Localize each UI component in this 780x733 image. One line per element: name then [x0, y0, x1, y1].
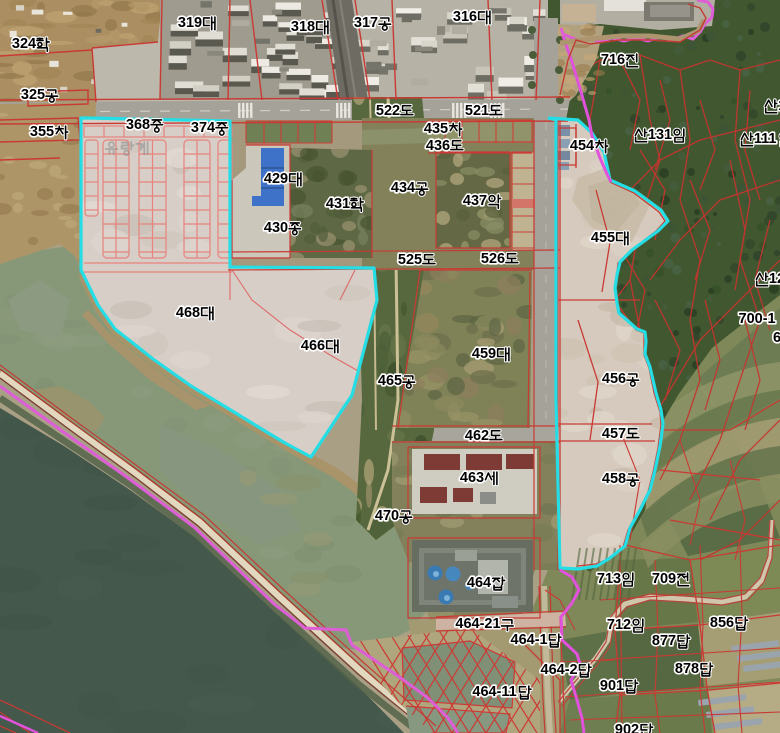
- svg-text:465: 465: [378, 373, 402, 389]
- svg-text:464-11: 464-11: [472, 684, 516, 700]
- svg-text:526: 526: [481, 251, 505, 267]
- svg-text:877: 877: [652, 633, 676, 649]
- svg-text:856: 856: [710, 615, 734, 631]
- svg-text:716: 716: [601, 52, 625, 68]
- svg-text:454: 454: [570, 138, 594, 154]
- svg-text:463: 463: [460, 470, 484, 486]
- svg-text:111: 111: [754, 131, 777, 147]
- svg-text:464-2: 464-2: [541, 662, 578, 678]
- svg-text:464: 464: [467, 575, 491, 591]
- svg-text:462: 462: [465, 428, 489, 444]
- svg-text:456: 456: [602, 371, 626, 387]
- svg-text:429: 429: [264, 171, 288, 187]
- svg-text:878: 878: [675, 661, 699, 677]
- svg-text:522: 522: [376, 103, 400, 119]
- svg-text:324: 324: [12, 36, 36, 52]
- svg-text:6: 6: [773, 330, 780, 346]
- svg-text:521: 521: [465, 103, 489, 119]
- svg-text:713: 713: [597, 571, 621, 587]
- svg-text:434: 434: [391, 180, 415, 196]
- svg-text:355: 355: [30, 124, 54, 140]
- svg-text:317: 317: [354, 15, 378, 31]
- svg-text:374: 374: [191, 120, 215, 136]
- svg-text:468: 468: [176, 305, 200, 321]
- svg-text:319: 319: [178, 15, 202, 31]
- svg-text:466: 466: [301, 338, 325, 354]
- svg-text:131: 131: [648, 127, 672, 143]
- svg-text:902: 902: [615, 722, 639, 733]
- svg-text:712: 712: [607, 617, 631, 633]
- svg-text:318: 318: [291, 19, 315, 35]
- svg-text:455: 455: [591, 230, 615, 246]
- svg-text:709: 709: [652, 571, 676, 587]
- svg-text:431: 431: [326, 196, 350, 212]
- svg-text:430: 430: [264, 220, 288, 236]
- svg-text:458: 458: [602, 471, 626, 487]
- svg-text:316: 316: [453, 9, 477, 25]
- svg-text:525: 525: [398, 252, 422, 268]
- svg-text:457: 457: [602, 426, 626, 442]
- svg-text:464-1: 464-1: [511, 632, 548, 648]
- svg-text:437: 437: [463, 193, 487, 209]
- svg-text:325: 325: [21, 87, 45, 103]
- svg-text:470: 470: [375, 508, 399, 524]
- svg-text:901: 901: [600, 678, 624, 694]
- svg-text:368: 368: [126, 117, 150, 133]
- svg-text:464-21: 464-21: [455, 616, 500, 632]
- svg-text:435: 435: [424, 121, 448, 137]
- svg-text:436: 436: [426, 138, 450, 154]
- svg-text:700-1: 700-1: [739, 311, 776, 327]
- svg-text:12: 12: [769, 271, 780, 287]
- svg-text:459: 459: [472, 346, 496, 362]
